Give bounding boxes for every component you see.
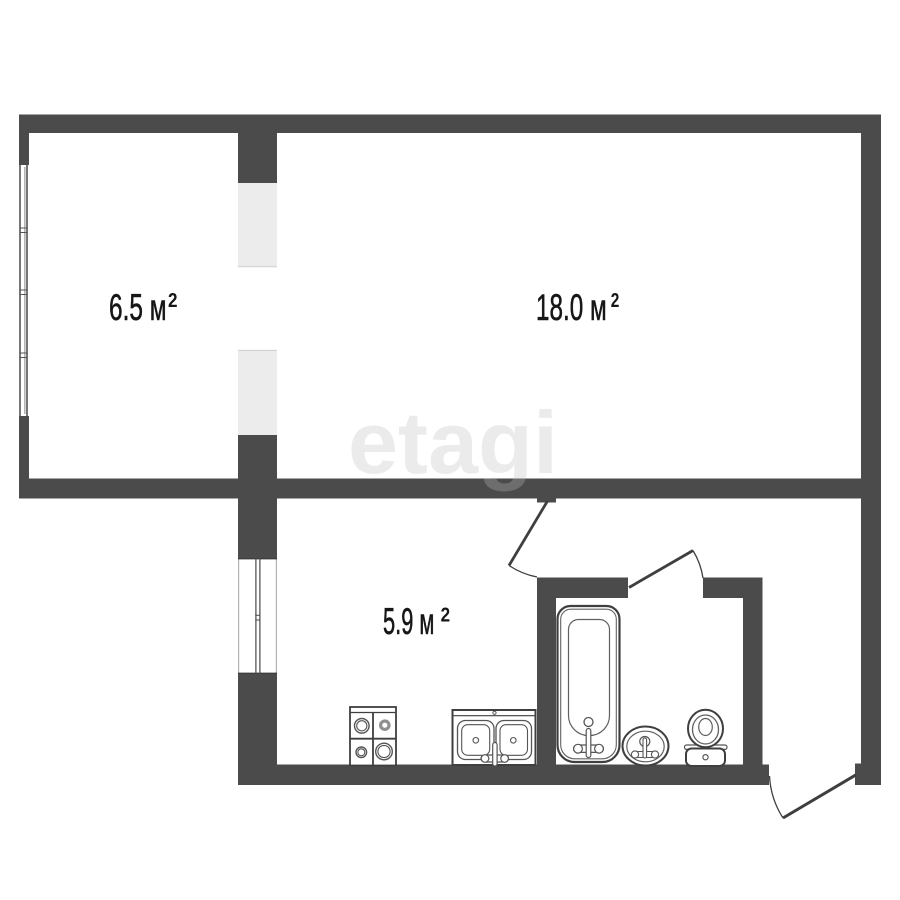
svg-text:2: 2 <box>611 290 620 312</box>
svg-text:18.0 м: 18.0 м <box>536 286 607 328</box>
svg-text:5.9 м: 5.9 м <box>383 600 434 642</box>
svg-text:2: 2 <box>441 605 451 627</box>
svg-text:6.5 м: 6.5 м <box>109 286 167 328</box>
svg-text:2: 2 <box>168 290 178 312</box>
svg-text:etagi: etagi <box>348 393 558 492</box>
